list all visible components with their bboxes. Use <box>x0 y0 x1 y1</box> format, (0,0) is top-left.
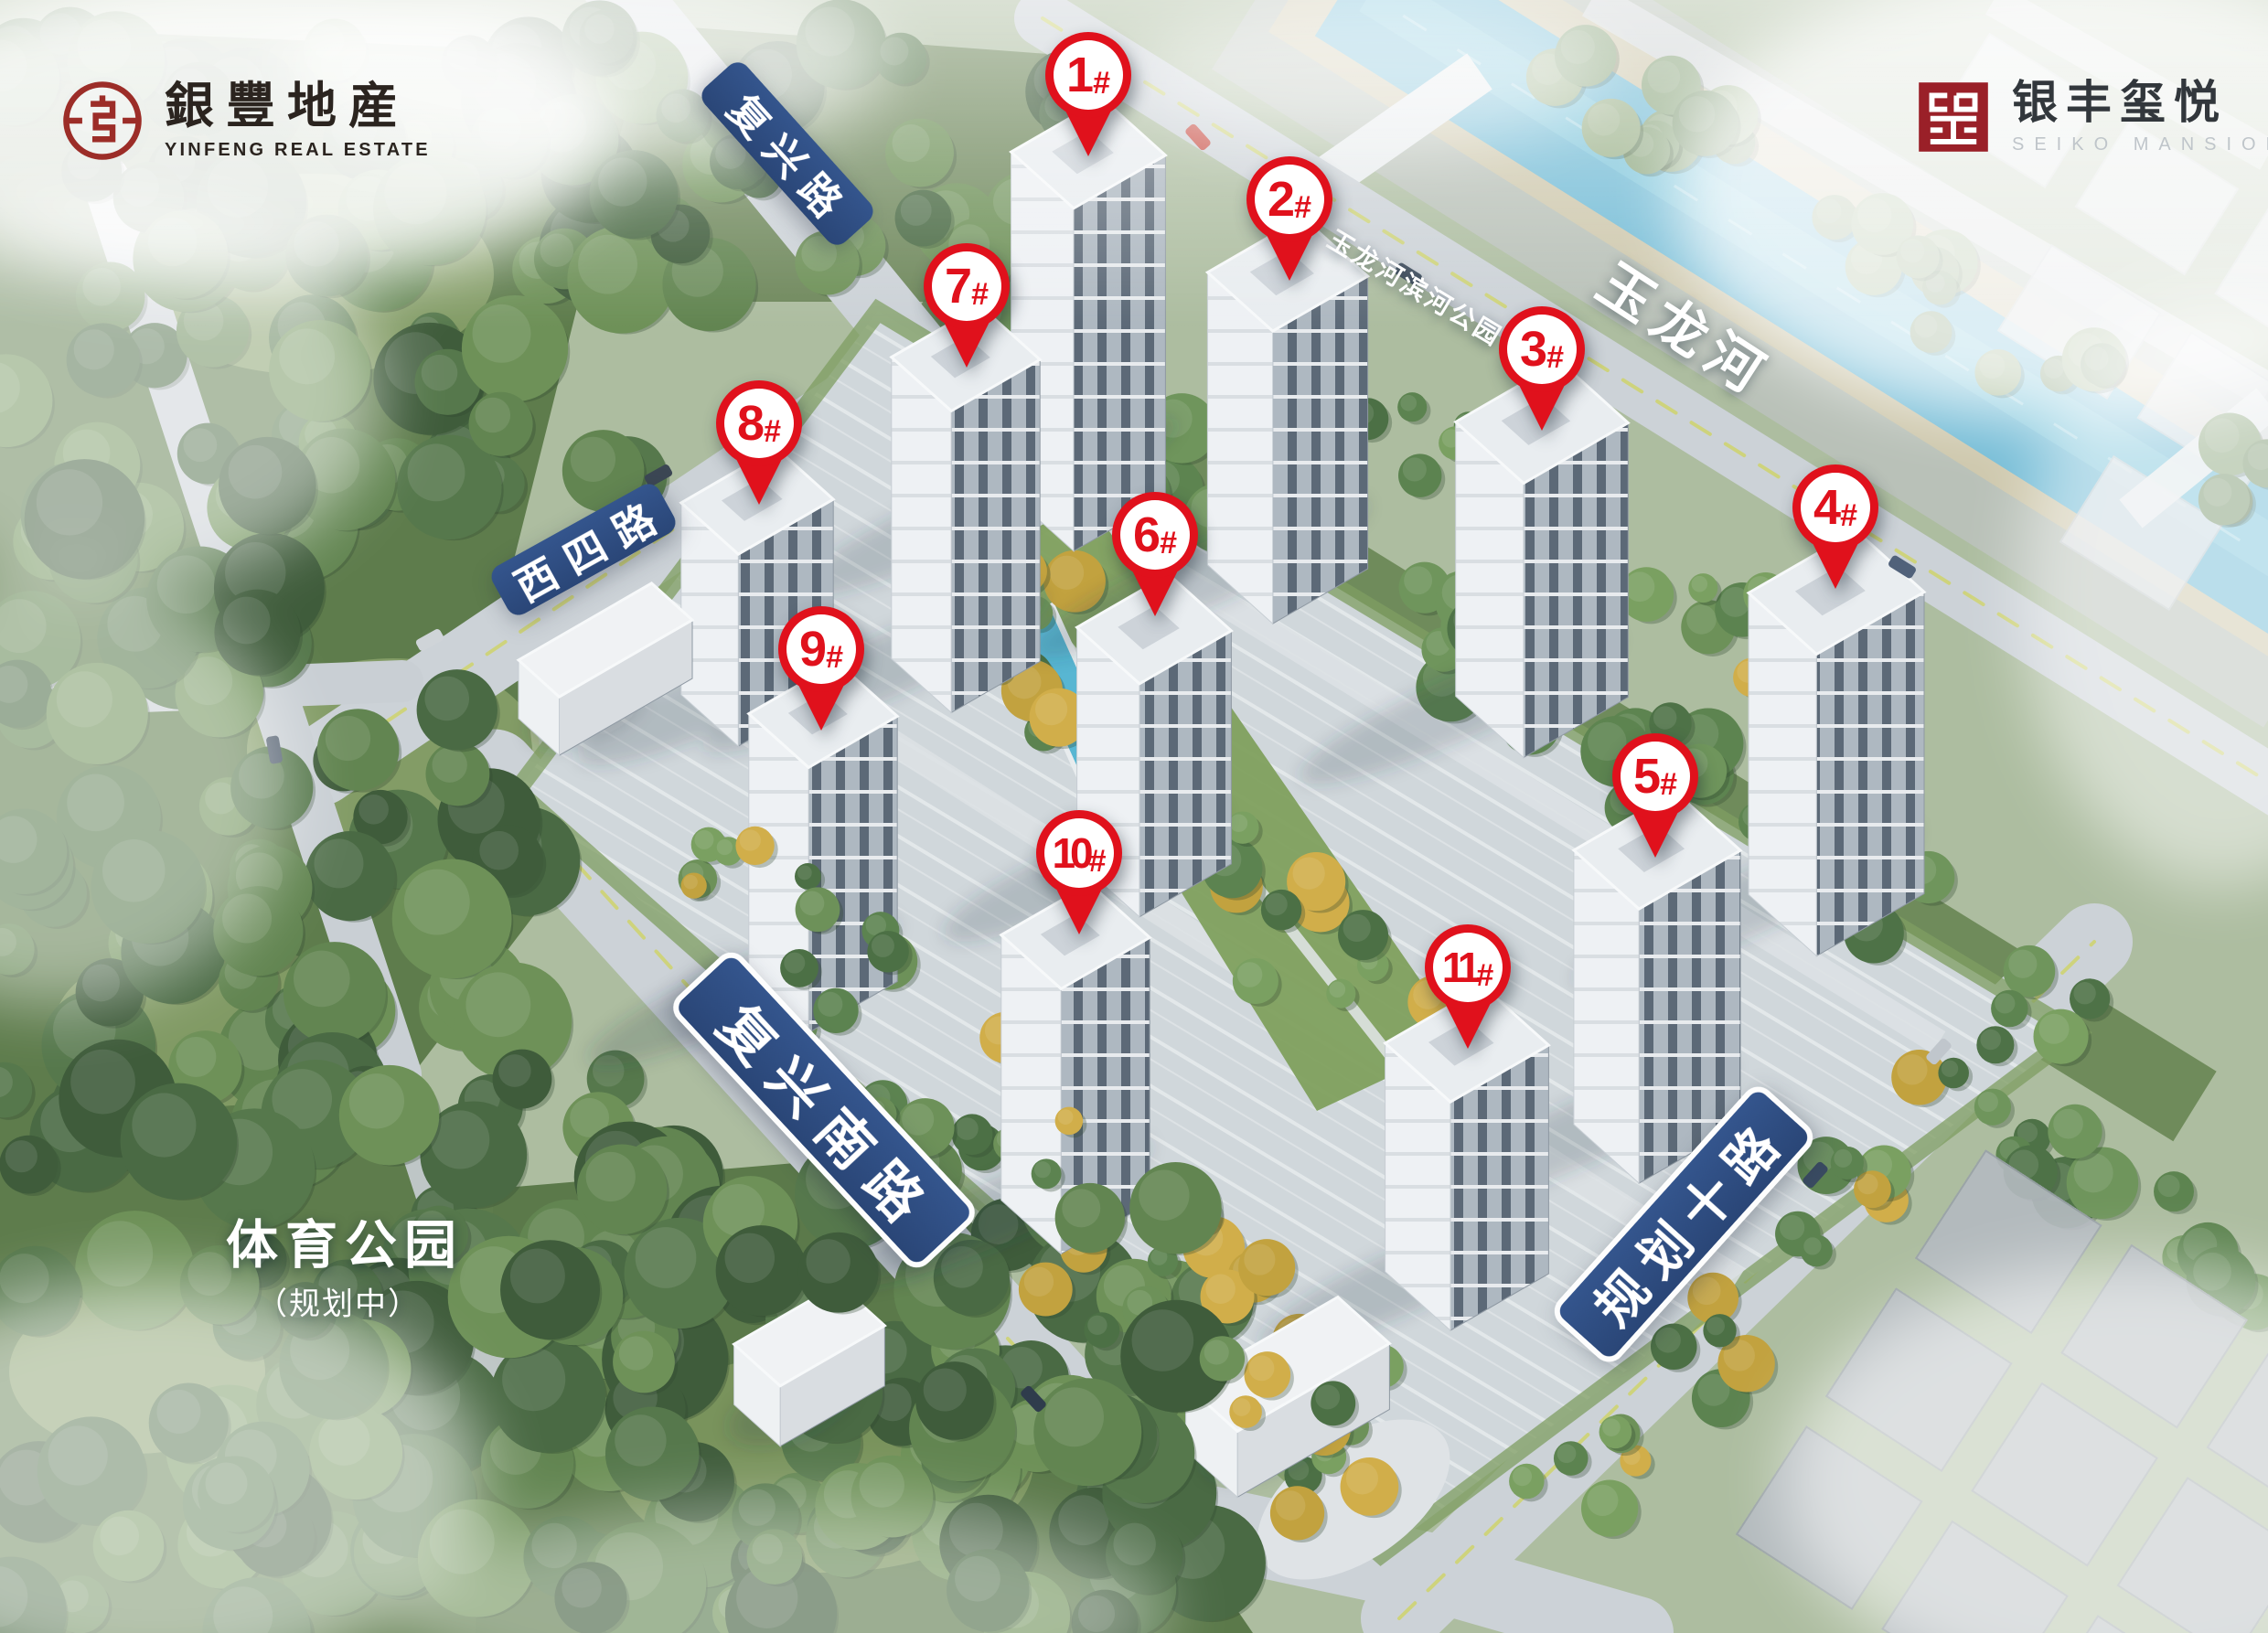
building-marker-5[interactable]: 5# <box>1612 733 1698 863</box>
marker-number: 11 <box>1442 946 1476 988</box>
marker-pin-head: 1# <box>1045 32 1131 118</box>
marker-number: 1 <box>1066 50 1092 100</box>
building-4# <box>1749 531 1924 956</box>
area-label-sports-park: 体育公园 <box>226 1203 464 1278</box>
developer-seal-icon <box>60 79 144 163</box>
marker-hash: # <box>1476 960 1493 991</box>
building-marker-9[interactable]: 9# <box>778 606 864 736</box>
building-marker-3[interactable]: 3# <box>1499 306 1585 436</box>
building-marker-8[interactable]: 8# <box>716 380 802 510</box>
developer-logo: 銀豐地産 YINFENG REAL ESTATE <box>60 79 431 163</box>
marker-hash: # <box>764 416 781 447</box>
building-marker-2[interactable]: 2# <box>1246 156 1332 286</box>
building-marker-10[interactable]: 10# <box>1036 810 1122 940</box>
project-mark-icon <box>1915 79 1992 155</box>
building-marker-1[interactable]: 1# <box>1045 32 1131 162</box>
marker-pin-head: 10# <box>1036 810 1122 896</box>
project-name-cn: 银丰玺悦 <box>2012 79 2268 127</box>
marker-pin-head: 6# <box>1112 492 1198 578</box>
marker-hash: # <box>1093 68 1110 99</box>
marker-hash: # <box>826 642 843 673</box>
marker-pin-head: 7# <box>924 243 1010 329</box>
marker-hash: # <box>971 279 989 310</box>
marker-number: 10 <box>1052 832 1087 874</box>
marker-hash: # <box>1840 500 1857 531</box>
building-marker-7[interactable]: 7# <box>924 243 1010 373</box>
marker-hash: # <box>1294 192 1311 223</box>
marker-number: 5 <box>1633 752 1659 801</box>
marker-pin-head: 3# <box>1499 306 1585 392</box>
marker-number: 7 <box>945 261 970 311</box>
marker-pin-head: 5# <box>1612 733 1698 819</box>
building-marker-11[interactable]: 11# <box>1425 924 1511 1054</box>
marker-hash: # <box>1160 528 1177 559</box>
marker-hash: # <box>1660 769 1677 800</box>
marker-pin-head: 11# <box>1425 924 1511 1010</box>
project-name-en: SEIKO MANSION <box>2012 134 2268 155</box>
marker-pin-head: 2# <box>1246 156 1332 242</box>
marker-number: 9 <box>799 624 825 674</box>
marker-number: 4 <box>1813 483 1839 532</box>
marker-number: 2 <box>1268 175 1293 224</box>
marker-hash: # <box>1546 342 1564 373</box>
marker-pin-head: 4# <box>1792 464 1878 550</box>
marker-pin-head: 8# <box>716 380 802 466</box>
marker-number: 6 <box>1133 510 1159 560</box>
marker-number: 3 <box>1520 325 1546 374</box>
area-label-sports-park-status: （规划中） <box>256 1279 421 1324</box>
building-marker-6[interactable]: 6# <box>1112 492 1198 622</box>
sky-haze <box>0 0 2268 329</box>
project-logo: 银丰玺悦 SEIKO MANSION <box>1915 79 2268 155</box>
site-plan-stage: 銀豐地産 YINFENG REAL ESTATE 银丰玺悦 SEIKO MANS… <box>0 0 2268 1633</box>
marker-pin-head: 9# <box>778 606 864 692</box>
aerial-scene <box>0 0 2268 1633</box>
marker-hash: # <box>1089 846 1107 877</box>
building-marker-4[interactable]: 4# <box>1792 464 1878 594</box>
marker-number: 8 <box>737 399 763 448</box>
developer-name-cn: 銀豐地産 <box>165 80 431 133</box>
developer-name-en: YINFENG REAL ESTATE <box>165 140 431 161</box>
